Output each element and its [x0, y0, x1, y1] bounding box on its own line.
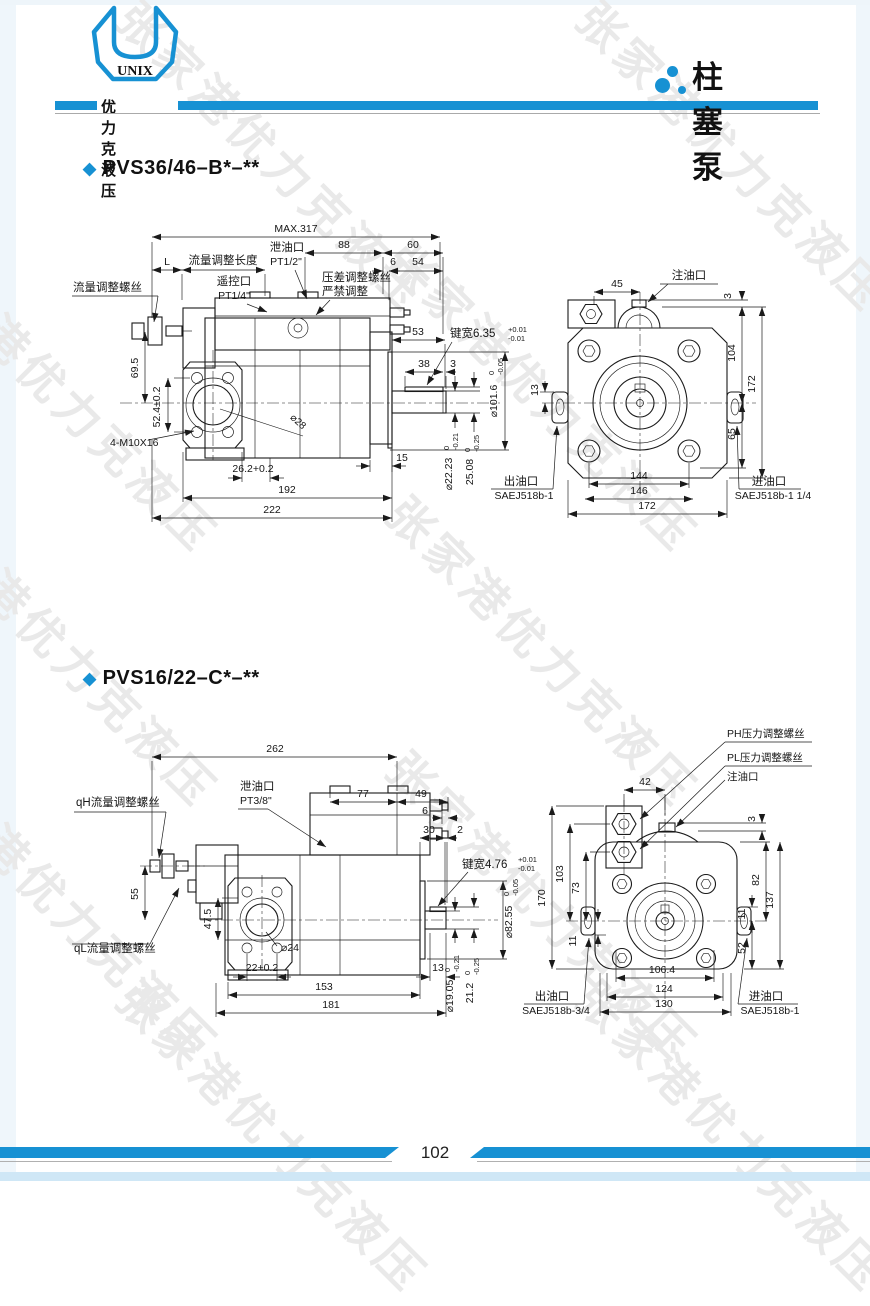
label-outlet: 出油口 — [535, 989, 570, 1003]
dim-172-bottom: 172 — [638, 500, 656, 512]
footer-bar-right — [470, 1147, 870, 1158]
label-outlet-size: SAEJ518b-3/4 — [522, 1005, 590, 1017]
dim-82: 82 — [750, 874, 762, 886]
dim-137: 137 — [764, 891, 776, 909]
fig1-front-dimensions: 注油口 45 3 104 172 13 65 144 146 172 出油口 S… — [491, 268, 811, 518]
dim-2508: 25.08 — [464, 459, 476, 485]
label-drain-port: 泄油口 — [270, 240, 305, 254]
dia8255-tol0: 0 — [502, 892, 511, 896]
label-remote-size: PT1/4" — [218, 290, 250, 302]
d212-tolm: -0.25 — [472, 958, 481, 975]
dim-172-right: 172 — [746, 375, 758, 393]
dim-65: 65 — [726, 428, 738, 440]
dim-60: 60 — [407, 239, 419, 251]
fig2-drawing: 262 泄油口 PT3/8" 77 49 6 30 2 键宽4.76 +0.01… — [0, 723, 870, 1023]
fig2-title: ◆PVS16/22–C*–** — [83, 667, 260, 690]
dim-38: 38 — [418, 358, 430, 370]
dim-73: 73 — [570, 882, 582, 894]
fig2-front-dimensions: PH压力调整螺丝 PL压力调整螺丝 注油口 42 3 170 103 73 11… — [522, 727, 812, 1017]
dim-6: 6 — [422, 805, 428, 817]
dim-88: 88 — [338, 239, 350, 251]
dim-55: 55 — [129, 888, 141, 900]
product-title: 柱塞泵 — [692, 52, 725, 187]
dim-1064: 106.4 — [649, 964, 675, 976]
dim-dia28: ⌀28 — [288, 412, 308, 432]
dim-153: 153 — [315, 981, 333, 993]
dim-181: 181 — [322, 999, 340, 1011]
page-number: 102 — [400, 1143, 470, 1163]
unix-logo-text: UNIX — [117, 64, 153, 79]
fig2-side-view — [140, 786, 498, 980]
fig2-front-view — [566, 798, 768, 1008]
label-no-adjust: 严禁调整 — [322, 284, 368, 298]
key-tol-plus: +0.01 — [518, 855, 537, 864]
dim-262: 262 — [266, 743, 284, 755]
dim-103: 103 — [554, 865, 566, 883]
dim-170: 170 — [536, 889, 548, 907]
label-fill-port: 注油口 — [672, 268, 707, 282]
dim-30: 30 — [423, 824, 435, 836]
d212-tol0: 0 — [463, 971, 472, 975]
dots-icon — [678, 86, 686, 94]
dim-212: 21.2 — [464, 983, 476, 1004]
label-remote-port: 遥控口 — [217, 274, 252, 288]
dim-192: 192 — [278, 484, 296, 496]
footer-bar-left — [0, 1147, 399, 1158]
fig2-side-dimensions: 262 泄油口 PT3/8" 77 49 6 30 2 键宽4.76 +0.01… — [72, 743, 537, 1017]
dim-dia1905: ⌀19.05 — [444, 980, 456, 1013]
label-ph-screw: PH压力调整螺丝 — [727, 727, 805, 740]
label-pl-screw: PL压力调整螺丝 — [727, 751, 803, 764]
dim-124: 124 — [655, 983, 673, 995]
dim-49: 49 — [415, 788, 427, 800]
label-drain-port: 泄油口 — [240, 779, 275, 793]
dim-15: 15 — [396, 452, 408, 464]
dim-222: 222 — [263, 504, 281, 516]
label-qh-screw: qH流量调整螺丝 — [76, 795, 160, 809]
dim-53: 53 — [412, 326, 424, 338]
footer-rule-left — [0, 1161, 392, 1162]
label-outlet-size: SAEJ518b-1 — [495, 490, 554, 502]
label-drain-size: PT3/8" — [240, 795, 272, 807]
dim-3: 3 — [746, 816, 758, 822]
dia8255-tolm: -0.05 — [511, 879, 520, 896]
label-inlet: 进油口 — [752, 474, 787, 488]
dim-695: 69.5 — [129, 358, 141, 379]
dim-262: 26.2+0.2 — [232, 463, 273, 475]
dim-3-top: 3 — [722, 293, 734, 299]
fig2-title-text: PVS16/22–C*–** — [103, 667, 260, 689]
label-key-width: 键宽4.76 — [462, 857, 507, 871]
footer-rule-right — [477, 1161, 870, 1162]
diamond-icon: ◆ — [83, 669, 97, 688]
brand-name: 优力克液压 — [101, 96, 116, 201]
fig1-front-view — [542, 292, 756, 492]
dia2223-tolm: -0.21 — [451, 433, 460, 450]
dim-77: 77 — [357, 788, 369, 800]
dim-13: 13 — [529, 384, 541, 396]
label-key-width: 键宽6.35 — [450, 326, 495, 340]
dia1905-tol0: 0 — [443, 968, 452, 972]
dim-130: 130 — [655, 998, 673, 1010]
label-flow-screw: 流量调整螺丝 — [73, 280, 142, 294]
dia1905-tolm: -0.21 — [452, 955, 461, 972]
dim-22: 22+0.2 — [246, 962, 279, 974]
key-tol-minus: -0.01 — [508, 334, 525, 343]
dim-6: 6 — [390, 256, 396, 268]
dim-42: 42 — [639, 776, 651, 788]
dim-475: 47.5 — [202, 909, 214, 930]
label-inlet-size: SAEJ518b-1 — [741, 1005, 800, 1017]
dim-dia101: ⌀101.6 — [488, 385, 500, 418]
dim-dia2223: ⌀22.23 — [443, 458, 455, 491]
dia101-tolm: -0.05 — [496, 358, 505, 375]
dim-dia24: ⌀24 — [281, 942, 299, 954]
dim-45: 45 — [611, 278, 623, 290]
dots-icon — [667, 66, 678, 77]
dim-3: 3 — [450, 358, 456, 370]
label-fill-port: 注油口 — [727, 770, 759, 783]
key-tol-plus: +0.01 — [508, 325, 527, 334]
label-bolts: 4-M10X16 — [110, 437, 159, 449]
dim-max317: MAX.317 — [274, 223, 317, 235]
d2508-tol0: 0 — [463, 448, 472, 452]
d2508-tolm: -0.25 — [472, 435, 481, 452]
fig1-title-text: PVS36/46–B*–** — [103, 157, 260, 179]
dia101-tol0: 0 — [487, 371, 496, 375]
dim-524: 52.4±0.2 — [151, 386, 163, 427]
unix-logo: UNIX — [88, 4, 183, 89]
fig1-side-dimensions: MAX.317 L 流量调整长度 泄油口 PT1/2" 88 60 6 54 遥… — [72, 223, 527, 522]
label-outlet: 出油口 — [504, 474, 539, 488]
dim-2: 2 — [457, 824, 463, 836]
label-inlet-size: SAEJ518b-1 1/4 — [735, 490, 812, 502]
dim-11-left: 11 — [567, 935, 579, 946]
label-flow-length: 流量调整长度 — [189, 253, 258, 267]
dim-11-right: 11 — [736, 908, 748, 919]
fig1-title: ◆PVS36/46–B*–** — [83, 157, 260, 180]
dim-104: 104 — [726, 344, 738, 362]
label-inlet: 进油口 — [749, 989, 784, 1003]
dia2223-tol0: 0 — [442, 446, 451, 450]
label-ql-screw: qL流量调整螺丝 — [74, 941, 156, 955]
page-edge-bottom — [0, 1172, 870, 1181]
label-diff-screw: 压差调整螺丝 — [322, 270, 391, 284]
brand-bar-left — [55, 101, 97, 110]
dim-54: 54 — [412, 256, 424, 268]
key-tol-minus: -0.01 — [518, 864, 535, 873]
dots-icon — [655, 78, 670, 93]
dim-144: 144 — [630, 470, 648, 482]
dim-L: L — [164, 256, 170, 268]
dim-dia8255: ⌀82.55 — [503, 906, 515, 939]
diamond-icon: ◆ — [83, 159, 97, 178]
dim-146: 146 — [630, 485, 648, 497]
fig1-drawing: MAX.317 L 流量调整长度 泄油口 PT1/2" 88 60 6 54 遥… — [0, 213, 870, 543]
label-drain-size: PT1/2" — [270, 256, 302, 268]
